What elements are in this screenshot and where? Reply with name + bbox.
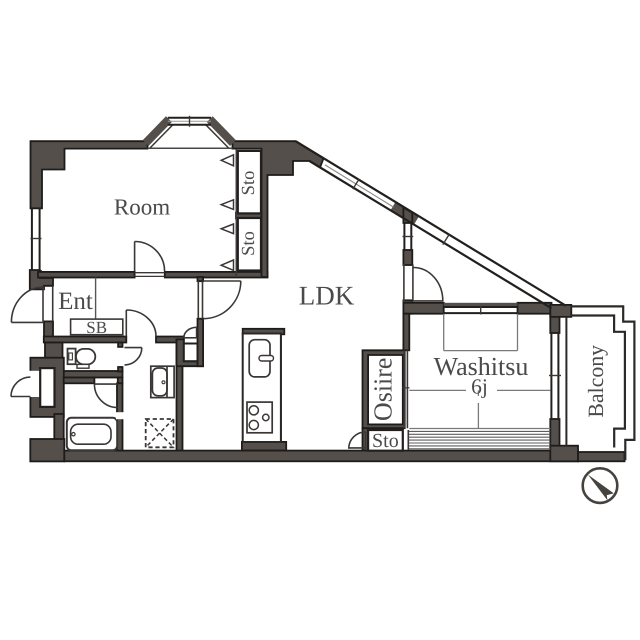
svg-text:Room: Room: [114, 195, 170, 220]
svg-text:LDK: LDK: [299, 281, 355, 311]
svg-text:SB: SB: [86, 318, 107, 337]
svg-text:Balcony: Balcony: [584, 345, 608, 418]
svg-text:Ent: Ent: [58, 288, 93, 315]
svg-text:Sto: Sto: [239, 231, 259, 256]
svg-text:Sto: Sto: [372, 430, 399, 452]
svg-text:Osiire: Osiire: [368, 358, 397, 422]
svg-text:6j: 6j: [471, 375, 488, 399]
svg-text:Sto: Sto: [239, 171, 259, 196]
